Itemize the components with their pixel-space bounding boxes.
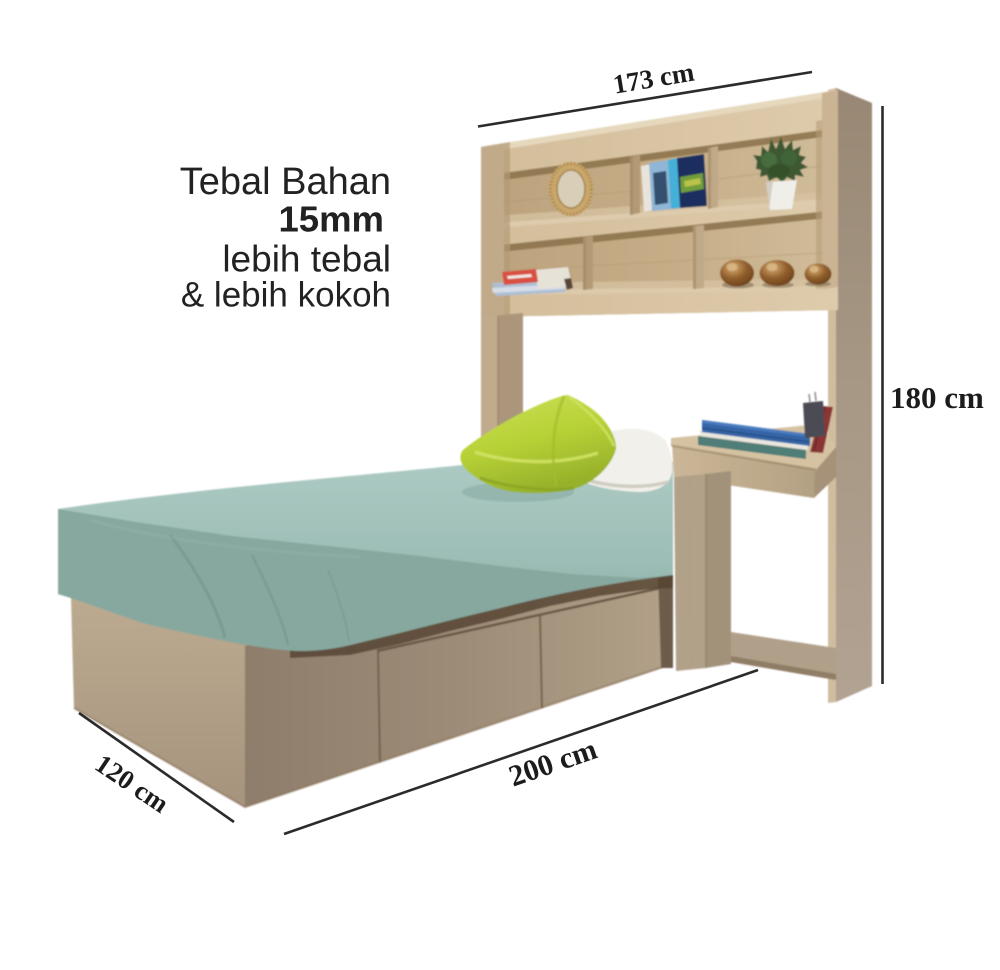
svg-text:Tebal Bahan: Tebal Bahan — [180, 161, 391, 203]
svg-text:lebih tebal: lebih tebal — [222, 239, 391, 280]
svg-text:180 cm: 180 cm — [890, 380, 984, 415]
svg-text:& lebih kokoh: & lebih kokoh — [181, 276, 391, 315]
svg-text:15mm: 15mm — [278, 199, 384, 240]
